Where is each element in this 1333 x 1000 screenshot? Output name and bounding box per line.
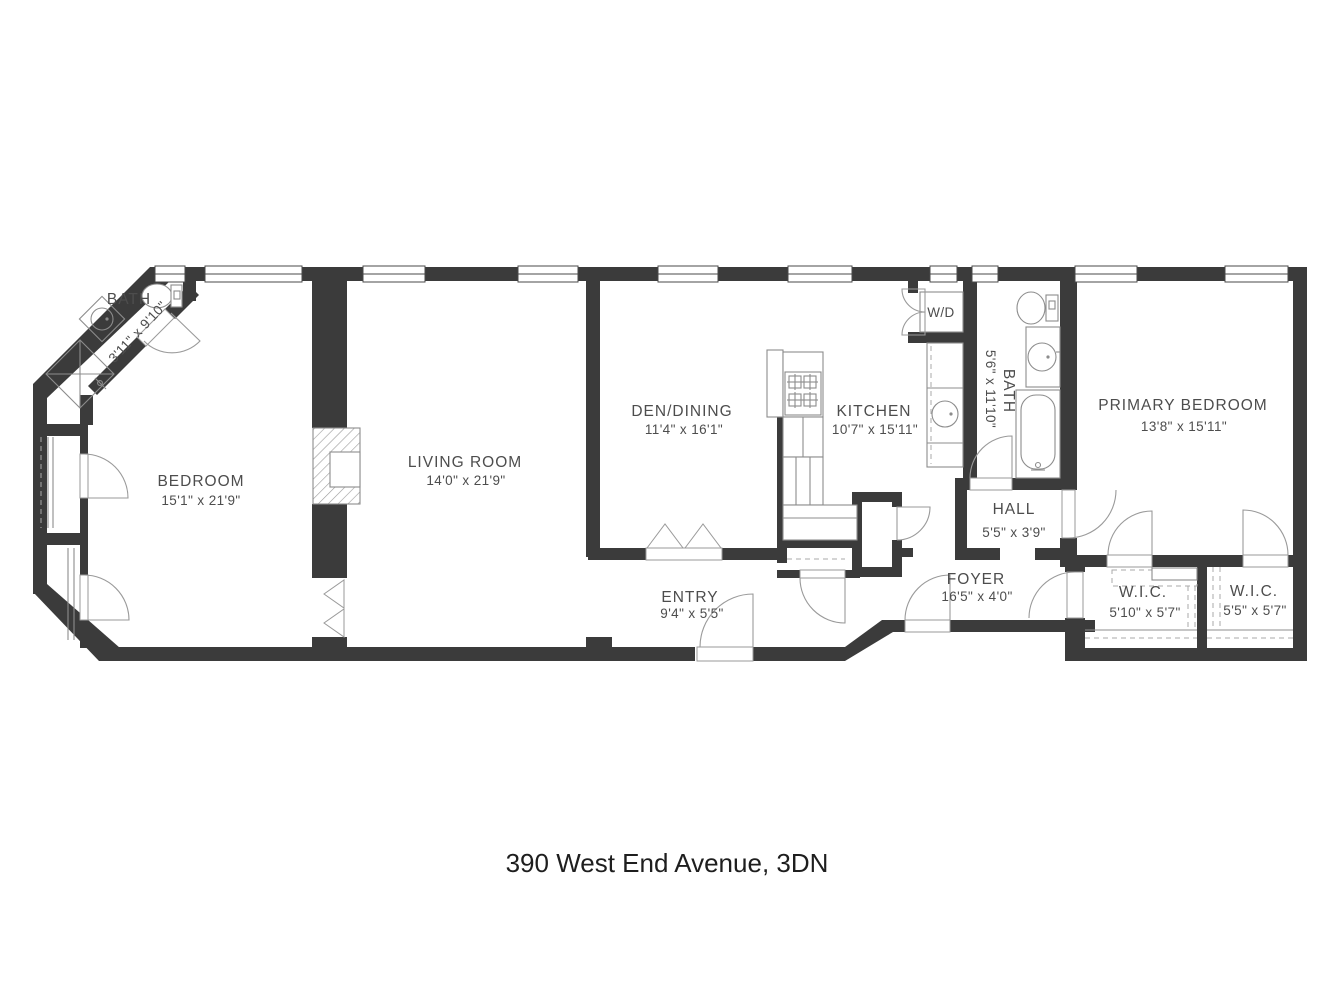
wic-left-dims: 5'10" x 5'7": [1109, 605, 1180, 620]
window: [930, 266, 957, 282]
floor-plan-page: BATH 3'11" x 9'10" BEDROOM 15'1" x 21'9"…: [0, 0, 1333, 1000]
door-swing: [800, 570, 845, 623]
wic-right-label: W.I.C.: [1230, 583, 1278, 600]
laundry-label: W/D: [927, 305, 954, 320]
double-door: [646, 524, 722, 560]
window: [518, 266, 578, 282]
bedroom-label: BEDROOM: [157, 473, 244, 490]
bifold-door: [324, 580, 344, 637]
wic-left-label: W.I.C.: [1119, 584, 1167, 601]
page-title: 390 West End Avenue, 3DN: [506, 848, 829, 878]
window: [1225, 266, 1288, 282]
window: [972, 266, 998, 282]
window: [1075, 266, 1137, 282]
entry-label: ENTRY: [661, 589, 718, 606]
kitchen-label: KITCHEN: [836, 403, 911, 420]
bath-primary-dims: 5'6" x 11'10": [983, 350, 998, 428]
wic-right-dims: 5'5" x 5'7": [1223, 603, 1286, 618]
foyer-dims: 16'5" x 4'0": [941, 589, 1012, 604]
shower-icon: [46, 340, 114, 408]
living-room-label: LIVING ROOM: [408, 454, 522, 471]
den-dining-label: DEN/DINING: [631, 403, 732, 420]
window: [205, 266, 302, 282]
hall-label: HALL: [993, 501, 1036, 518]
kitchen-dims: 10'7" x 15'11": [832, 422, 918, 437]
primary-bedroom-label: PRIMARY BEDROOM: [1098, 397, 1267, 414]
stove-icon: [767, 350, 823, 417]
foyer-label: FOYER: [947, 571, 1005, 588]
door-swing: [80, 575, 129, 620]
door-swing: [1062, 490, 1116, 538]
bath-small-label: BATH: [107, 291, 151, 308]
toilet-icon: [1017, 292, 1058, 324]
den-dining-dims: 11'4" x 16'1": [645, 422, 723, 437]
door-swing: [1029, 572, 1083, 618]
window: [155, 266, 185, 282]
door-swing: [897, 507, 930, 540]
door-swing: [1107, 511, 1152, 567]
window: [363, 266, 425, 282]
room-labels: BATH 3'11" x 9'10" BEDROOM 15'1" x 21'9"…: [106, 291, 1287, 621]
bedroom-dims: 15'1" x 21'9": [161, 493, 240, 508]
hall-dims: 5'5" x 3'9": [982, 525, 1045, 540]
entry-dims: 9'4" x 5'5": [660, 606, 723, 621]
vanity-sink-icon: [1026, 327, 1060, 387]
kitchen-sink-icon: [927, 343, 963, 467]
window: [788, 266, 852, 282]
fireplace: [313, 428, 360, 504]
door-swing: [1243, 510, 1288, 567]
floor-plan: BATH 3'11" x 9'10" BEDROOM 15'1" x 21'9"…: [0, 0, 1333, 1000]
door-swing: [80, 454, 128, 498]
window: [658, 266, 718, 282]
primary-bedroom-dims: 13'8" x 15'11": [1141, 419, 1227, 434]
kitchen-cabinets: [783, 417, 857, 559]
living-room-dims: 14'0" x 21'9": [426, 473, 505, 488]
bathtub-icon: [1016, 390, 1060, 478]
bath-primary-label: BATH: [1000, 369, 1017, 413]
